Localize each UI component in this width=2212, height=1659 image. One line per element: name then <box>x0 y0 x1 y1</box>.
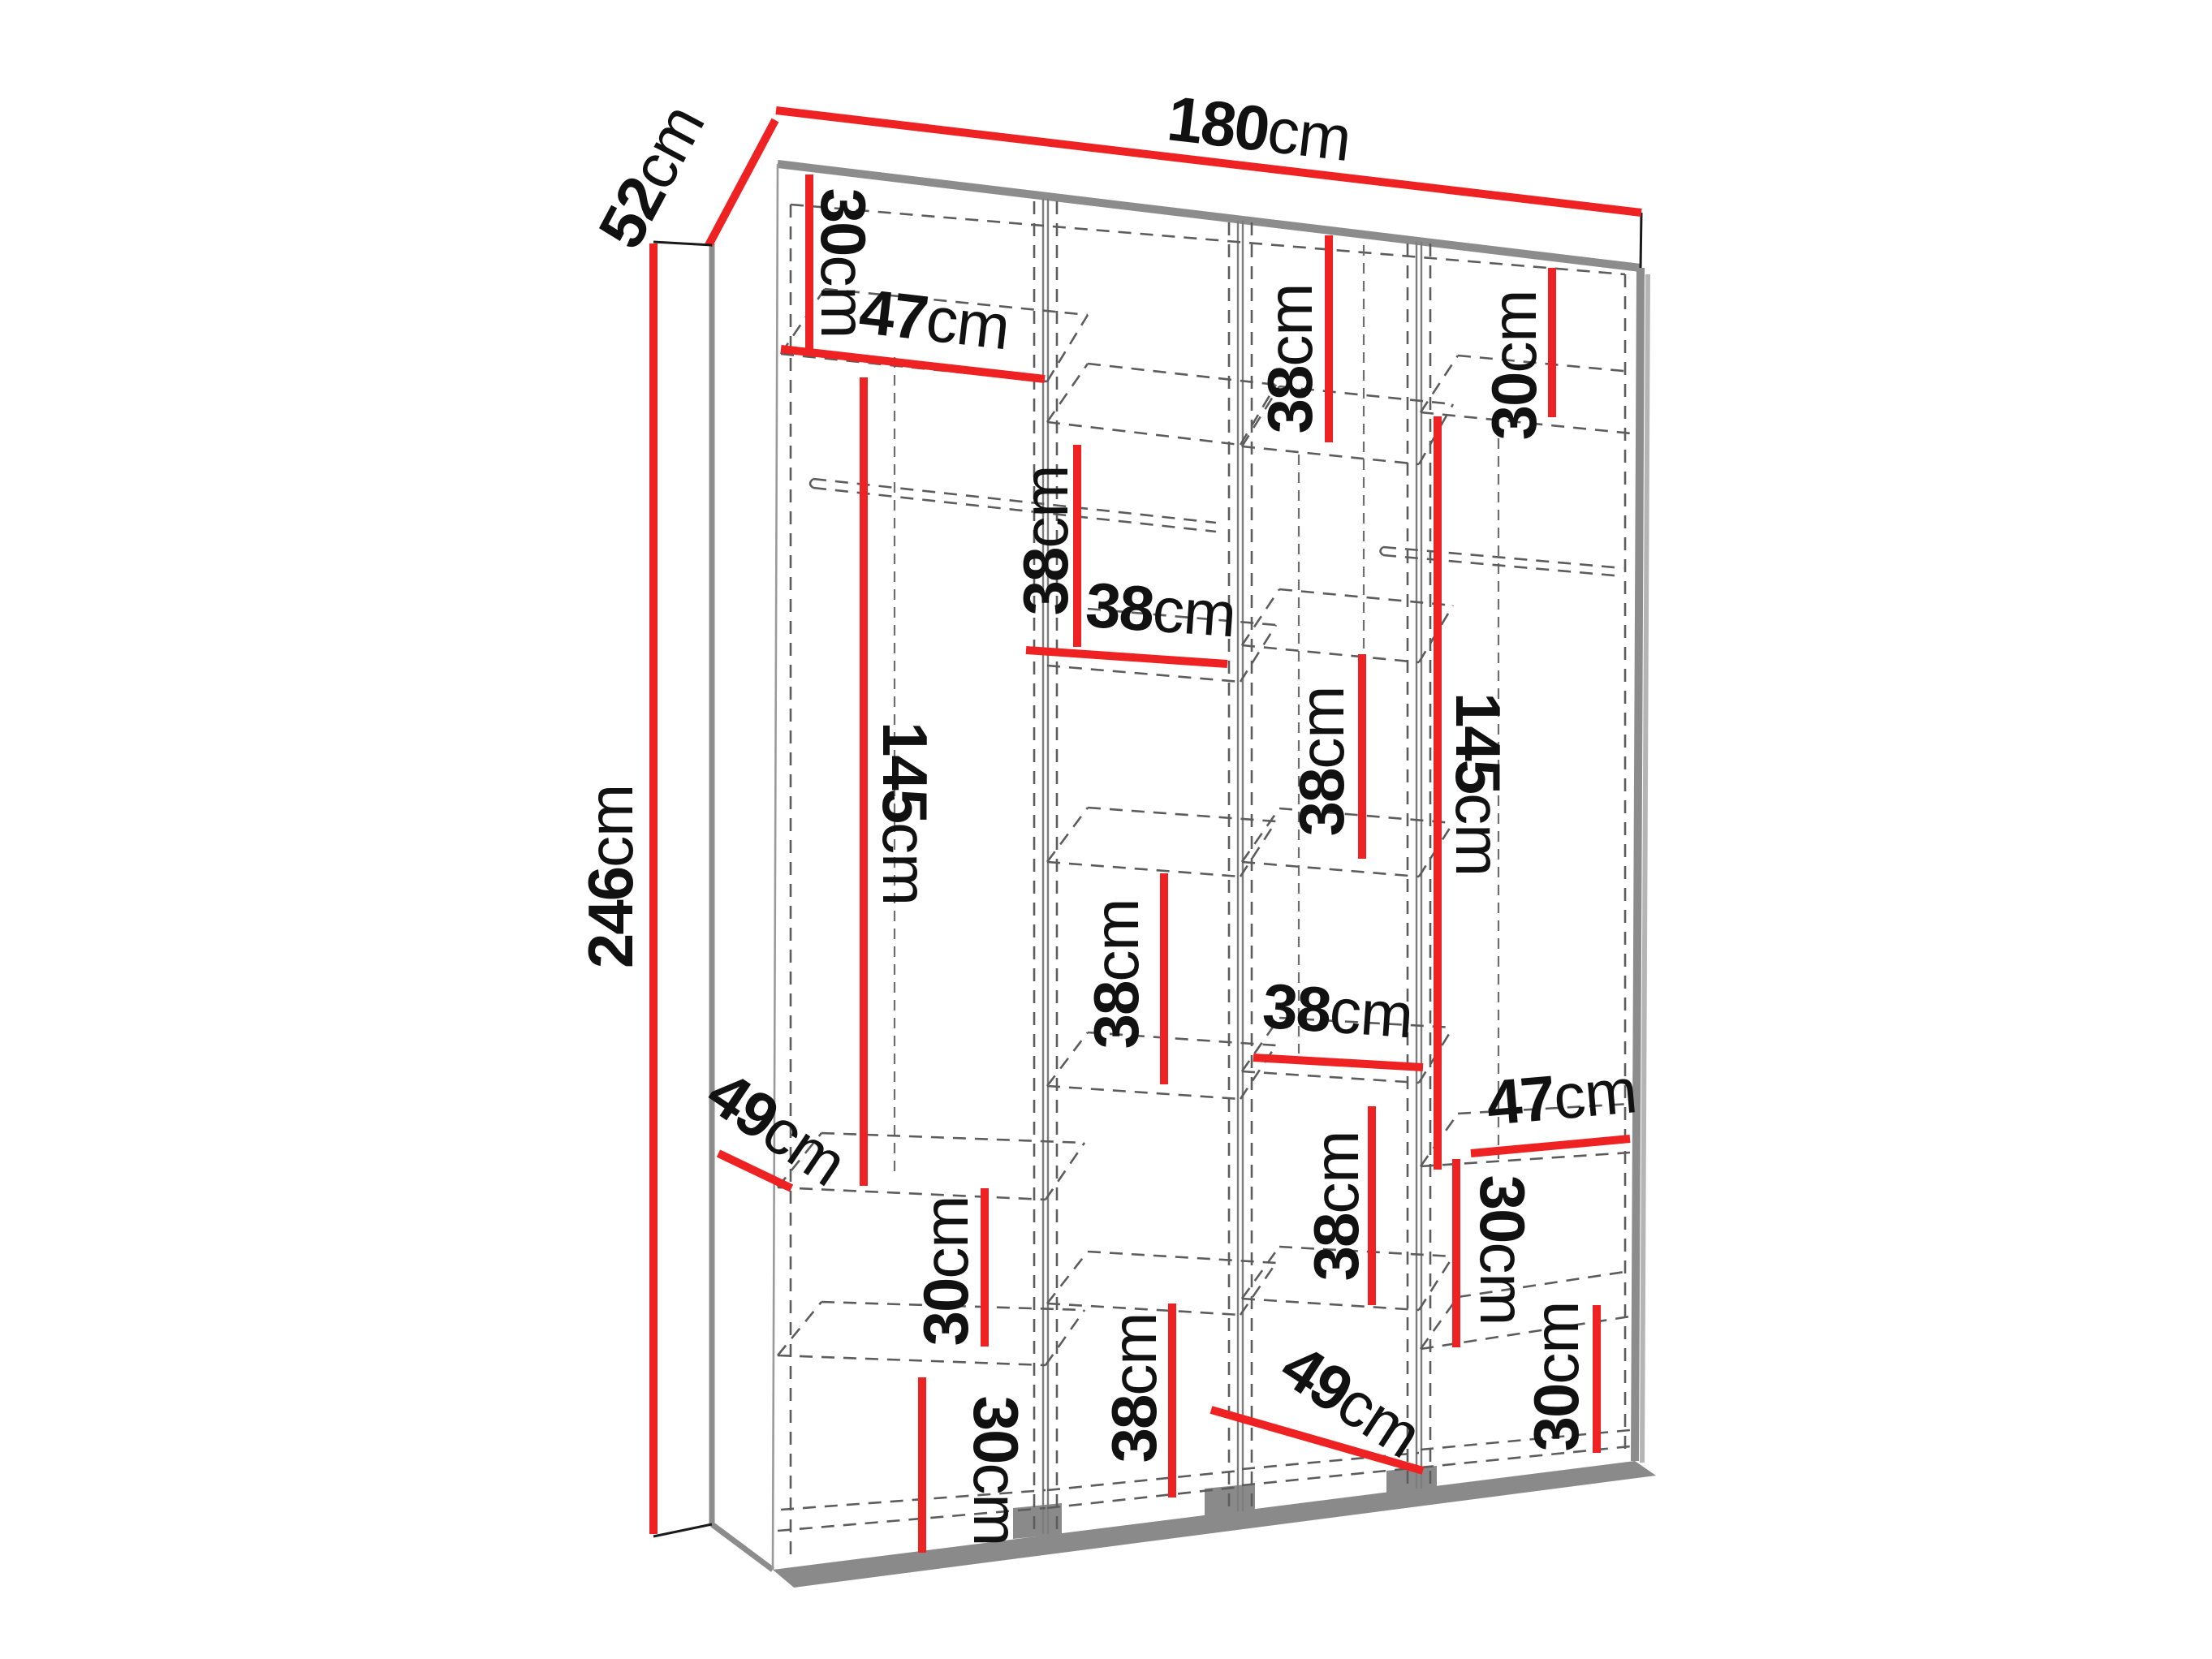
dim-label-col2-top-38cm: 38cm <box>1010 466 1081 616</box>
dim-label-col4-145cm: 145cm <box>1442 692 1514 876</box>
right-outer-edge <box>1635 268 1641 1461</box>
dim-label-col2-width-38cm: 38cm <box>1084 569 1238 651</box>
dim-label-col3-lower-38cm: 38cm <box>1300 1131 1372 1282</box>
dim-label-col4-top-30cm: 30cm <box>1478 291 1550 441</box>
dim-label-col4-47cm: 47cm <box>1484 1054 1640 1139</box>
diagram-canvas: 52cm 180cm 246cm 30cm 47cm 145cm 49cm 30… <box>0 0 2212 1659</box>
dim-label-col3-upper-38cm: 38cm <box>1286 687 1357 837</box>
dim-label-col1-mid-30cm: 30cm <box>910 1196 981 1347</box>
tick-246-top <box>653 242 712 245</box>
top-right-end-edge <box>1641 213 1641 268</box>
dim-label-col4-bottom-30cm: 30cm <box>1520 1302 1592 1452</box>
dim-label-col2-bottom-38cm: 38cm <box>1098 1313 1170 1463</box>
dim-label-col3-top-38cm: 38cm <box>1254 284 1326 434</box>
wardrobe-dimension-diagram: 52cm 180cm 246cm 30cm 47cm 145cm 49cm 30… <box>0 0 2212 1659</box>
left-side-panel <box>712 164 778 1570</box>
dim-label-246cm: 246cm <box>575 785 646 968</box>
dim-label-col1-145cm: 145cm <box>869 722 941 905</box>
tick-246-bottom <box>653 1524 712 1536</box>
dim-label-col2-mid-38cm: 38cm <box>1080 899 1152 1049</box>
dim-label-52cm: 52cm <box>584 93 718 259</box>
dim-label-col3-width-38cm: 38cm <box>1261 970 1415 1052</box>
dim-label-col1-bottom-30cm: 30cm <box>960 1396 1032 1546</box>
